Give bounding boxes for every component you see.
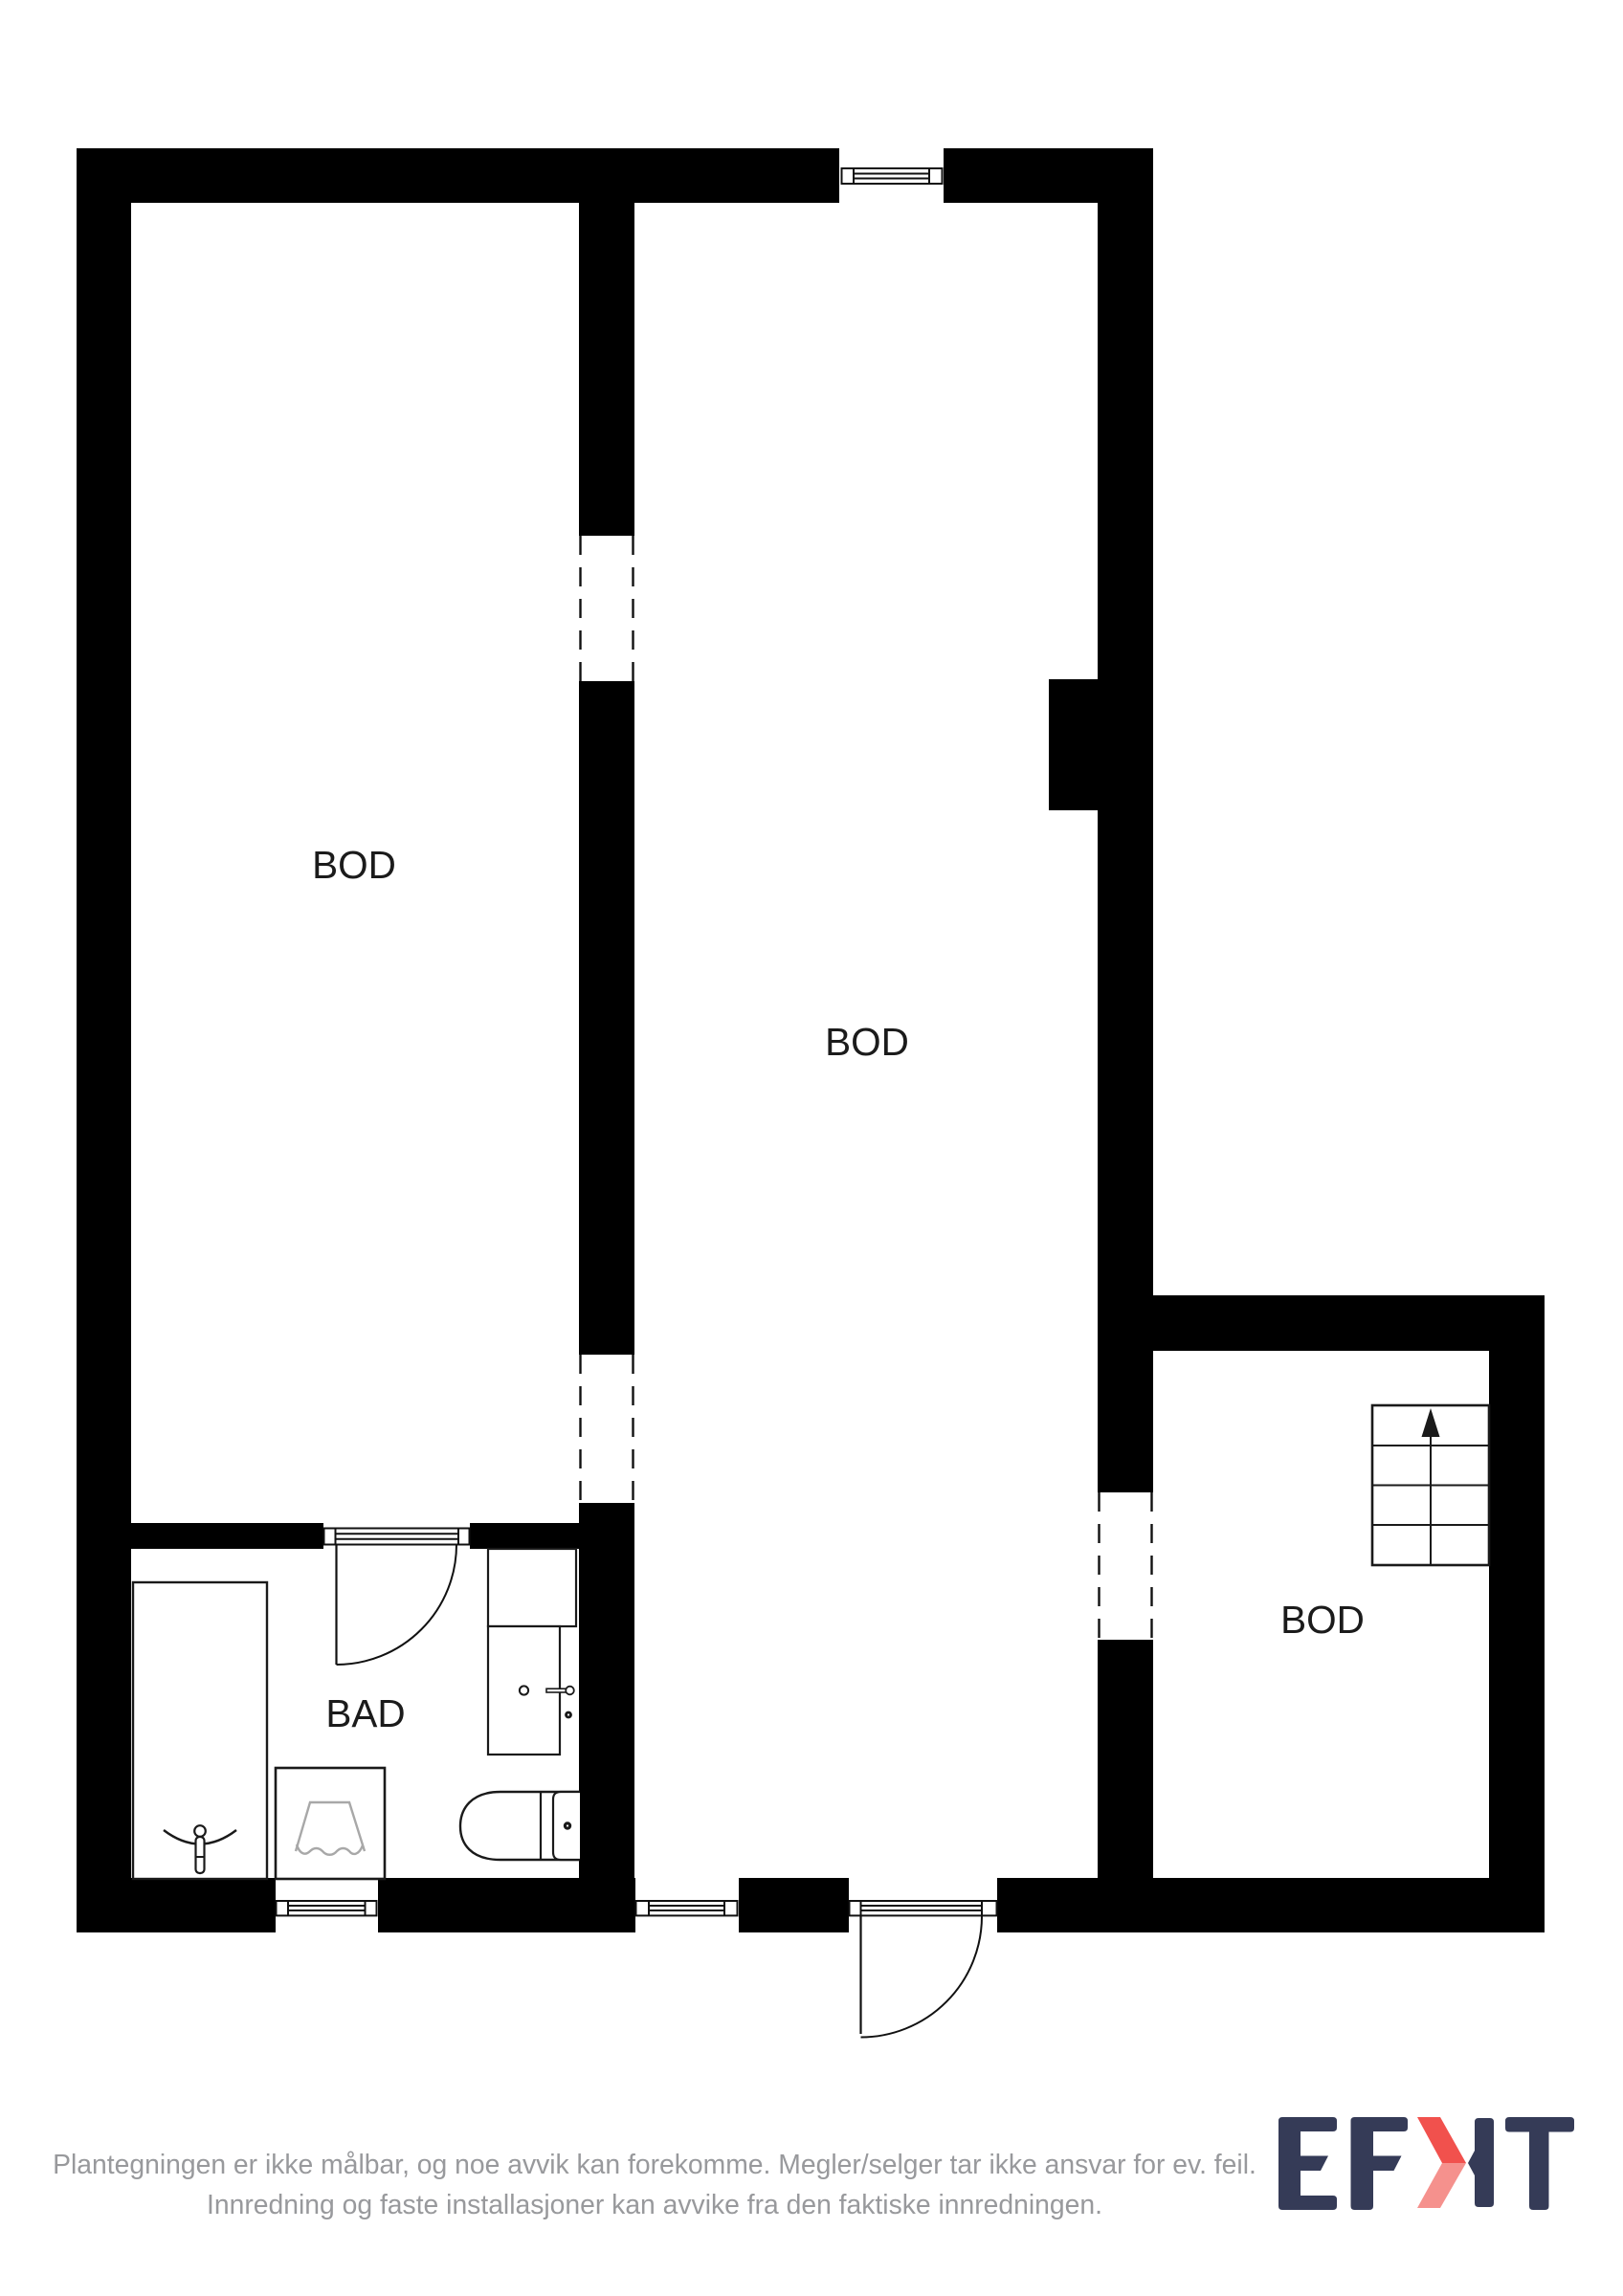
svg-text:BAD: BAD xyxy=(325,1691,405,1735)
svg-text:Plantegningen er ikke målbar,: Plantegningen er ikke målbar, og noe avv… xyxy=(53,2149,1256,2179)
svg-text:BOD: BOD xyxy=(825,1020,909,1064)
svg-text:Innredning og faste installasj: Innredning og faste installasjoner kan a… xyxy=(207,2189,1102,2219)
svg-text:BOD: BOD xyxy=(1280,1598,1365,1642)
svg-text:BOD: BOD xyxy=(312,843,396,887)
